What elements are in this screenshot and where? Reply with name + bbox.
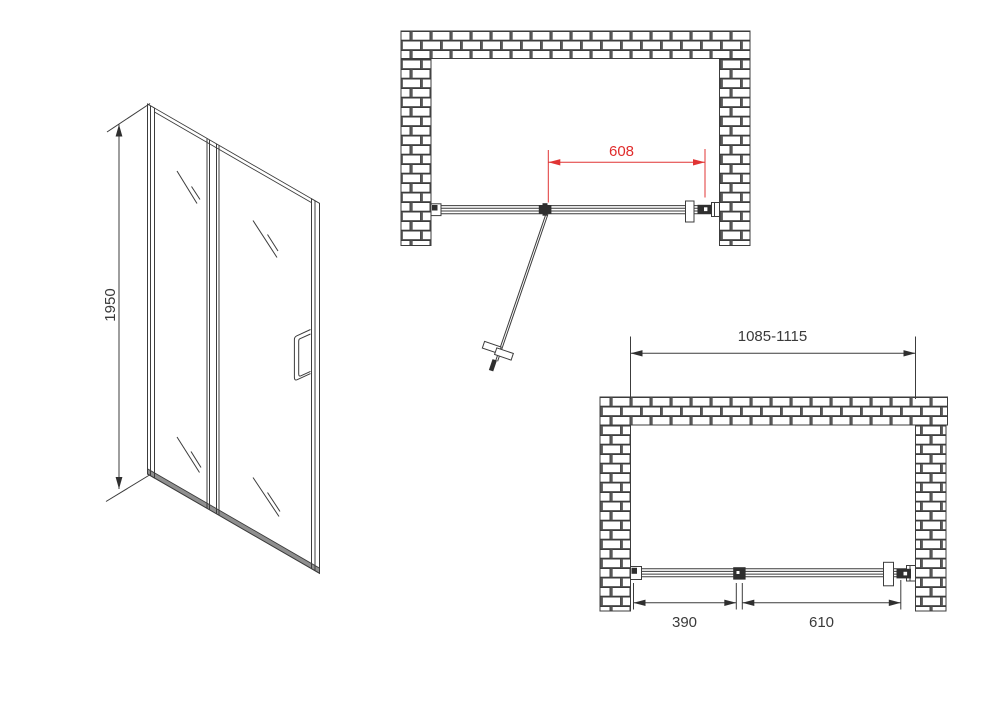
wall-profile-right [712, 203, 720, 217]
overall-width-dimension: 1085-1115 [631, 328, 916, 399]
brick-wall-top-band [401, 31, 750, 59]
extension-line [106, 474, 152, 502]
height-dimension: 1950 [102, 104, 152, 502]
arrowhead-down-icon [116, 477, 123, 489]
arrowhead-right-icon [693, 159, 705, 165]
track-section [631, 569, 913, 577]
support-bar-bracket [686, 201, 695, 222]
track-section [432, 206, 715, 214]
door-handle-plan [884, 562, 894, 586]
plan-view-closed: 1085-1115 390 [600, 328, 948, 631]
arrowhead-up-icon [116, 125, 123, 137]
extension-line [107, 104, 150, 133]
door-outline [148, 104, 320, 573]
open-door-leaf [482, 214, 548, 372]
fixed-panel-dimension: 390 [634, 583, 737, 631]
door-panel-dimension: 610 [742, 580, 901, 631]
brick-wall-right-column [916, 425, 947, 611]
brick-wall-right-column [720, 59, 751, 246]
drawing-canvas: 1950 [0, 0, 1000, 707]
opening-dimension: 608 [548, 143, 705, 203]
height-dimension-label: 1950 [102, 288, 119, 321]
brick-wall [600, 397, 948, 611]
bottom-rail [148, 469, 320, 574]
arrowhead-right-icon [889, 600, 901, 606]
arrowhead-right-icon [724, 600, 736, 606]
opening-dimension-label: 608 [609, 143, 634, 160]
arrowhead-left-icon [634, 600, 646, 606]
top-rail [155, 112, 312, 203]
overall-width-label: 1085-1115 [738, 328, 808, 345]
shower-door-technical-drawing: 1950 [0, 0, 1000, 707]
front-view: 1950 [102, 104, 320, 574]
arrowhead-left-icon [548, 159, 560, 165]
brick-wall-top-band [600, 397, 948, 425]
door-handle-plan [495, 348, 514, 360]
plan-view-open: 608 [401, 31, 750, 371]
door-front [148, 104, 320, 573]
arrowhead-right-icon [904, 350, 916, 356]
pivot-hinge [733, 567, 745, 579]
brick-wall-left-column [600, 425, 631, 611]
fixed-panel-label: 390 [672, 614, 697, 631]
door-panel-label: 610 [809, 614, 834, 631]
arrowhead-left-icon [631, 350, 643, 356]
glass-shine-marks [177, 171, 280, 517]
brick-wall-left-column [401, 59, 431, 246]
door-edge-cap [489, 359, 497, 371]
door-handle-front [294, 330, 310, 381]
arrowhead-left-icon [742, 600, 754, 606]
